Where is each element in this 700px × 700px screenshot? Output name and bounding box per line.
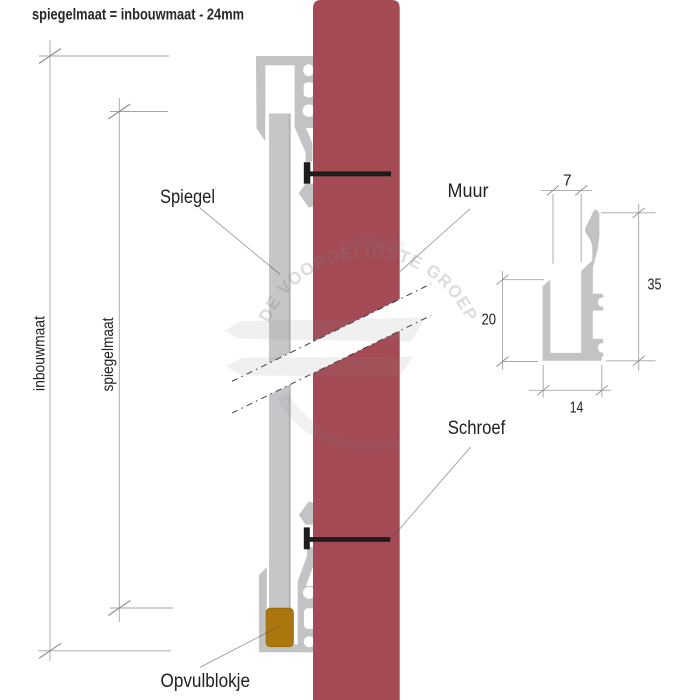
- svg-text:Spiegel: Spiegel: [160, 187, 215, 208]
- svg-text:inbouwmaat: inbouwmaat: [32, 315, 49, 391]
- svg-text:14: 14: [570, 400, 584, 417]
- svg-text:7: 7: [563, 173, 572, 190]
- svg-text:Opvulblokje: Opvulblokje: [161, 671, 251, 692]
- svg-text:Muur: Muur: [448, 181, 490, 202]
- svg-text:Schroef: Schroef: [448, 418, 506, 439]
- svg-text:spiegelmaat: spiegelmaat: [100, 317, 117, 392]
- svg-text:35: 35: [648, 277, 662, 294]
- svg-text:spiegelmaat = inbouwmaat - 24m: spiegelmaat = inbouwmaat - 24mm: [32, 7, 244, 24]
- svg-text:20: 20: [482, 312, 497, 329]
